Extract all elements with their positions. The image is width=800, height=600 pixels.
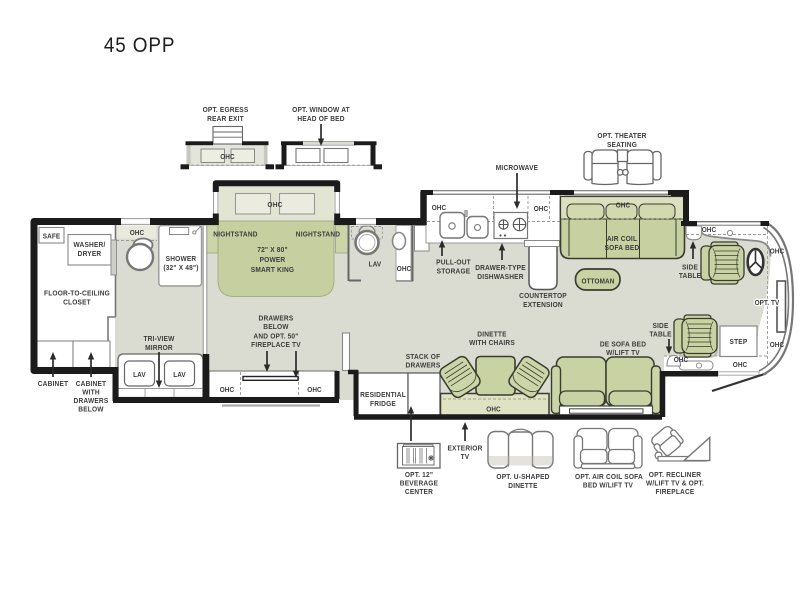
- svg-text:CLOSET: CLOSET: [63, 299, 91, 306]
- svg-text:OHC: OHC: [733, 362, 748, 369]
- svg-text:OPT. AIR COIL SOFA: OPT. AIR COIL SOFA: [575, 474, 643, 481]
- svg-text:PULL-OUT: PULL-OUT: [436, 259, 471, 266]
- svg-text:COUNTERTOP: COUNTERTOP: [519, 293, 567, 300]
- svg-text:OPT. 12": OPT. 12": [405, 472, 433, 479]
- svg-text:OPT. THEATER: OPT. THEATER: [597, 133, 646, 140]
- svg-text:DINETTE: DINETTE: [477, 331, 506, 338]
- svg-text:WITH CHAIRS: WITH CHAIRS: [469, 340, 515, 347]
- svg-text:OHC: OHC: [770, 342, 785, 349]
- svg-text:FRIDGE: FRIDGE: [370, 401, 396, 408]
- svg-text:SAFE: SAFE: [43, 233, 61, 240]
- svg-text:STEP: STEP: [730, 339, 748, 346]
- svg-text:SMART KING: SMART KING: [251, 267, 295, 274]
- svg-text:BEVERAGE: BEVERAGE: [400, 480, 438, 487]
- svg-text:BELOW: BELOW: [263, 324, 289, 331]
- svg-text:DRAWERS: DRAWERS: [259, 315, 294, 322]
- svg-text:OHC: OHC: [432, 205, 447, 212]
- svg-text:NIGHTSTAND: NIGHTSTAND: [213, 231, 257, 238]
- svg-text:EXTERIOR: EXTERIOR: [447, 445, 482, 452]
- svg-text:OPT. RECLINER: OPT. RECLINER: [649, 472, 701, 479]
- svg-text:TABLE: TABLE: [679, 273, 701, 280]
- svg-text:(32" X 48"): (32" X 48"): [163, 265, 198, 272]
- svg-text:OHC: OHC: [397, 266, 412, 273]
- svg-text:SOFA BED: SOFA BED: [605, 245, 640, 252]
- svg-text:TV: TV: [461, 454, 470, 461]
- svg-text:OHC: OHC: [486, 406, 501, 413]
- svg-text:SIDE: SIDE: [682, 264, 698, 271]
- svg-text:TRI-VIEW: TRI-VIEW: [143, 336, 174, 343]
- svg-text:OPT. TV: OPT. TV: [755, 300, 780, 307]
- svg-text:OPT. WINDOW AT: OPT. WINDOW AT: [292, 107, 350, 114]
- svg-text:DINETTE: DINETTE: [508, 483, 537, 490]
- svg-text:OHC: OHC: [702, 227, 717, 234]
- svg-text:CABINET: CABINET: [38, 381, 69, 388]
- svg-text:OHC: OHC: [267, 202, 282, 209]
- svg-text:OPT. EGRESS: OPT. EGRESS: [203, 107, 249, 114]
- svg-text:LAV: LAV: [173, 372, 186, 379]
- svg-text:POWER: POWER: [260, 257, 286, 264]
- svg-text:LAV: LAV: [133, 372, 146, 379]
- svg-text:W/LIFT TV & OPT.: W/LIFT TV & OPT.: [646, 480, 704, 487]
- svg-text:DRAWERS: DRAWERS: [74, 398, 109, 405]
- svg-text:45 OPP: 45 OPP: [104, 34, 176, 57]
- svg-text:DISHWASHER: DISHWASHER: [477, 274, 523, 281]
- svg-text:OHC: OHC: [616, 202, 631, 209]
- svg-text:OHC: OHC: [130, 230, 145, 237]
- svg-text:OHC: OHC: [220, 387, 235, 394]
- svg-text:DRAWER-TYPE: DRAWER-TYPE: [475, 265, 526, 272]
- svg-text:W/LIFT TV: W/LIFT TV: [606, 350, 640, 357]
- svg-text:AND OPT. 50": AND OPT. 50": [253, 333, 298, 340]
- svg-text:OHC: OHC: [220, 154, 235, 161]
- svg-text:LAV: LAV: [369, 261, 382, 268]
- svg-text:FLOOR-TO-CEILING: FLOOR-TO-CEILING: [44, 290, 110, 297]
- svg-text:SHOWER: SHOWER: [166, 256, 197, 263]
- svg-text:WASHER/: WASHER/: [74, 242, 106, 249]
- svg-text:SEATING: SEATING: [607, 142, 637, 149]
- svg-text:OPT. U-SHAPED: OPT. U-SHAPED: [496, 474, 549, 481]
- svg-text:OHC: OHC: [307, 387, 322, 394]
- svg-text:OHC: OHC: [770, 248, 785, 255]
- svg-text:DRAWERS: DRAWERS: [406, 362, 441, 369]
- svg-text:EXTENSION: EXTENSION: [523, 302, 563, 309]
- svg-text:CABINET: CABINET: [76, 381, 107, 388]
- svg-text:TABLE: TABLE: [649, 331, 671, 338]
- svg-text:BELOW: BELOW: [78, 406, 104, 413]
- svg-text:MIRROR: MIRROR: [145, 345, 173, 352]
- svg-text:FIREPLACE TV: FIREPLACE TV: [251, 342, 301, 349]
- svg-text:REAR EXIT: REAR EXIT: [207, 116, 244, 123]
- svg-text:OTTOMAN: OTTOMAN: [582, 278, 615, 285]
- svg-text:CENTER: CENTER: [405, 489, 433, 496]
- svg-text:FIREPLACE: FIREPLACE: [656, 489, 695, 496]
- svg-text:HEAD OF BED: HEAD OF BED: [297, 116, 344, 123]
- svg-text:72" X 80": 72" X 80": [257, 247, 288, 254]
- svg-text:DE SOFA BED: DE SOFA BED: [600, 341, 646, 348]
- svg-text:STORAGE: STORAGE: [437, 268, 471, 275]
- svg-text:BED W/LIFT TV: BED W/LIFT TV: [583, 482, 633, 489]
- svg-text:SIDE: SIDE: [652, 323, 668, 330]
- svg-text:OHC: OHC: [674, 357, 689, 364]
- svg-text:WITH: WITH: [82, 389, 100, 396]
- svg-text:MICROWAVE: MICROWAVE: [496, 165, 539, 172]
- svg-text:OHC: OHC: [534, 206, 549, 213]
- svg-text:DRYER: DRYER: [78, 251, 102, 258]
- svg-text:RESIDENTIAL: RESIDENTIAL: [360, 392, 406, 399]
- svg-text:NIGHTSTAND: NIGHTSTAND: [296, 231, 340, 238]
- svg-text:STACK OF: STACK OF: [406, 354, 441, 361]
- svg-text:AIR COIL: AIR COIL: [607, 236, 638, 243]
